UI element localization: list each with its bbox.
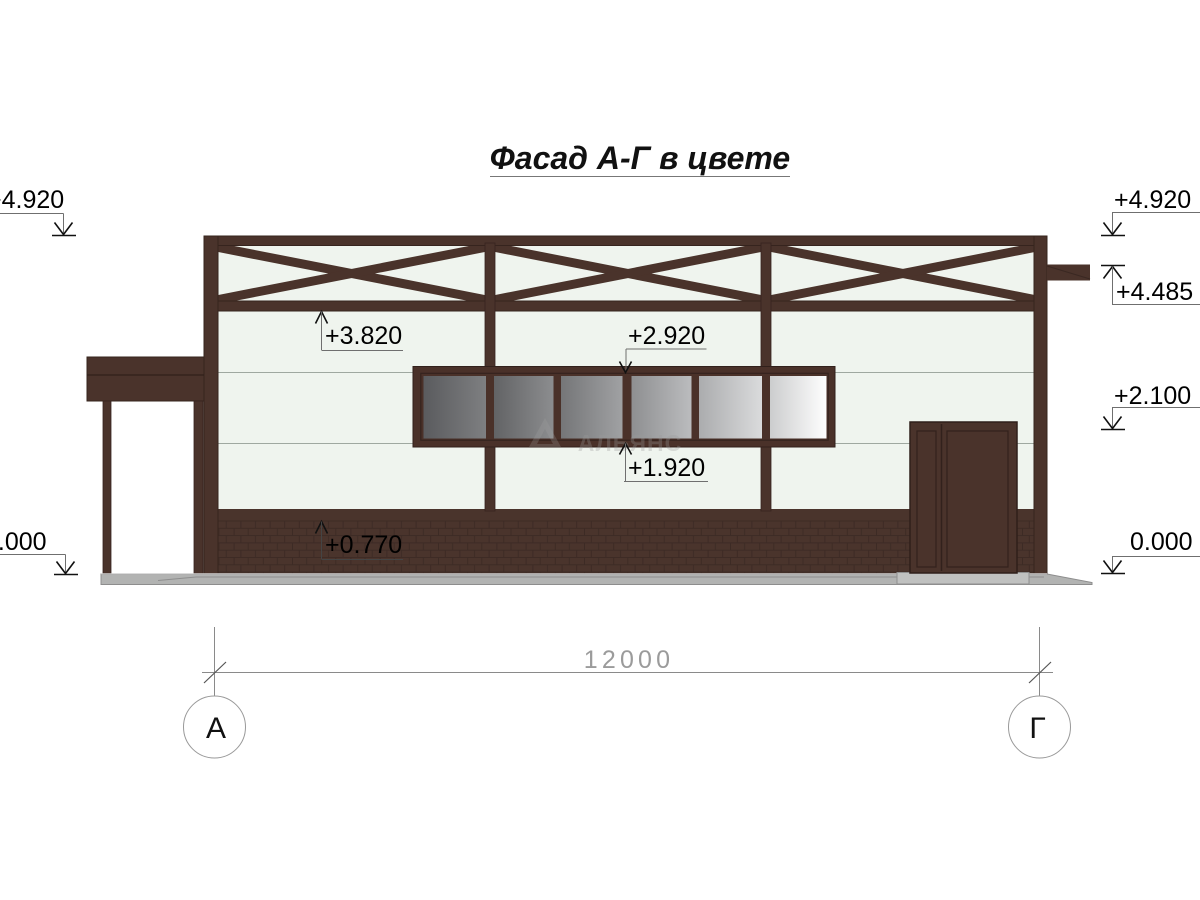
svg-text:Фасад А-Г в цвете: Фасад А-Г в цвете [490, 140, 790, 176]
svg-text:+4.920: +4.920 [1114, 186, 1191, 214]
svg-text:А: А [206, 712, 226, 745]
svg-text:+4.920: +4.920 [0, 186, 64, 214]
svg-text:+2.100: +2.100 [1114, 382, 1191, 410]
svg-text:12000: 12000 [584, 646, 675, 674]
svg-text:+2.920: +2.920 [628, 322, 705, 350]
svg-text:0.000: 0.000 [1130, 528, 1193, 556]
svg-text:+4.485: +4.485 [1116, 278, 1193, 306]
svg-text:0.000: 0.000 [0, 528, 47, 556]
svg-text:Г: Г [1029, 712, 1045, 745]
svg-text:+1.920: +1.920 [628, 454, 705, 482]
svg-text:+3.820: +3.820 [325, 322, 402, 350]
svg-text:+0.770: +0.770 [325, 531, 402, 559]
